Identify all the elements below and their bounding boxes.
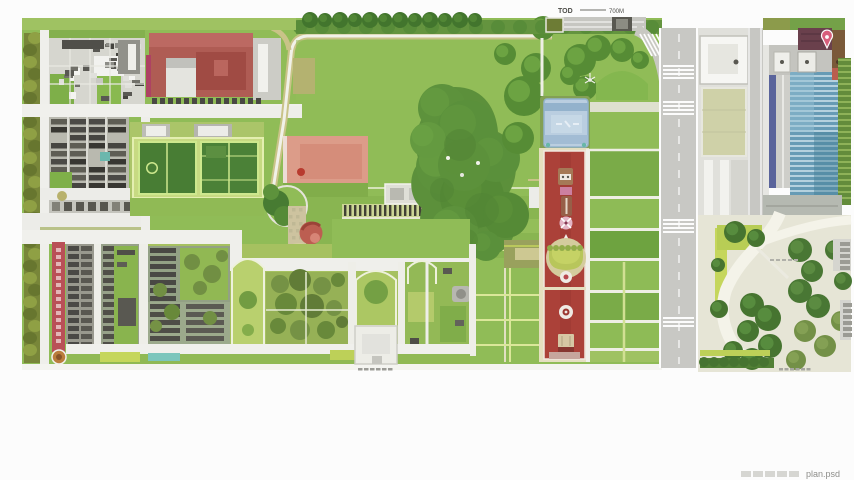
svg-text:plan.psd: plan.psd: [806, 469, 840, 479]
